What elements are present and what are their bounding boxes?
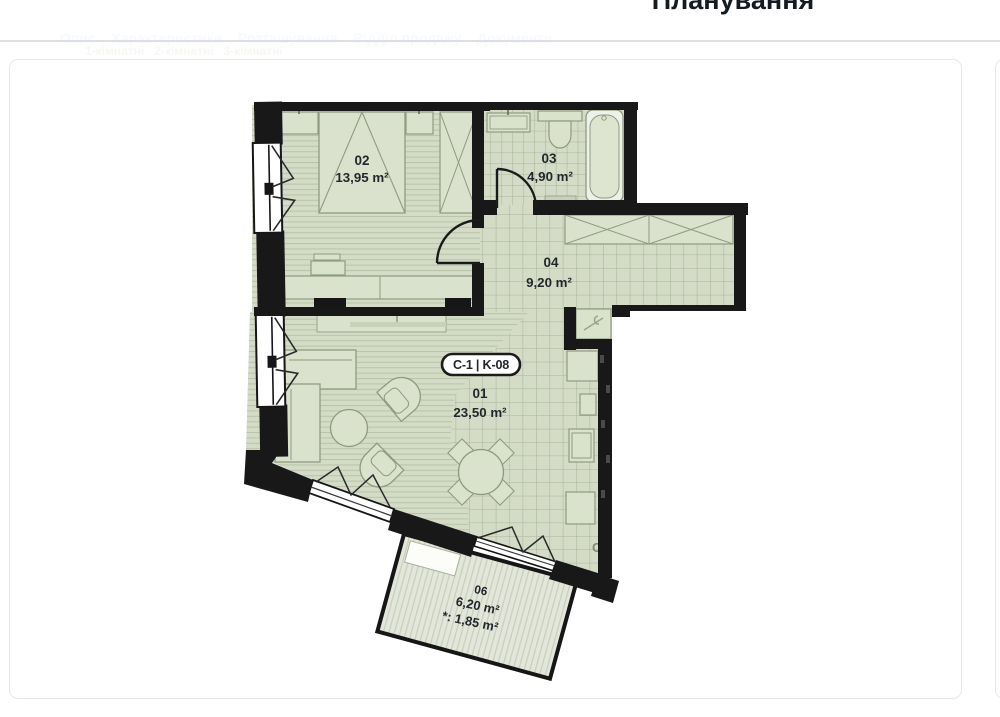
svg-text:13,95 m²: 13,95 m² [335, 170, 389, 185]
svg-text:9,20 m²: 9,20 m² [526, 275, 572, 290]
svg-text:4,90 m²: 4,90 m² [527, 169, 573, 184]
svg-text:03: 03 [541, 151, 557, 166]
svg-text:01: 01 [472, 386, 488, 401]
svg-text:02: 02 [354, 153, 369, 168]
svg-text:C-1 | K-08: C-1 | K-08 [453, 358, 509, 372]
svg-text:23,50 m²: 23,50 m² [453, 405, 507, 420]
svg-text:04: 04 [543, 255, 559, 270]
